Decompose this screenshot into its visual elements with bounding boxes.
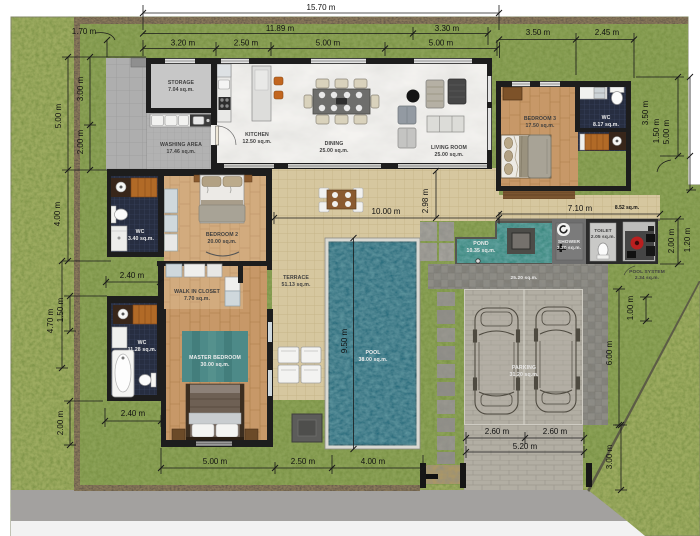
svg-text:1.50 m: 1.50 m [56,297,65,322]
svg-text:POOL SYSTEM: POOL SYSTEM [629,269,665,275]
svg-text:2.50 m: 2.50 m [234,39,259,48]
svg-text:4.00 m: 4.00 m [53,201,62,226]
svg-text:25.00 sq.m.: 25.00 sq.m. [319,148,349,154]
svg-text:2.40 m: 2.40 m [120,271,145,280]
svg-text:4.00 m: 4.00 m [361,457,386,466]
svg-text:7.04 sq.m.: 7.04 sq.m. [168,87,194,93]
svg-text:3.20 sq.m.: 3.20 sq.m. [557,245,581,251]
svg-text:11.28 sq.m.: 11.28 sq.m. [128,347,157,353]
svg-text:3.00 m: 3.00 m [605,444,614,469]
svg-text:1.20 m: 1.20 m [683,227,692,252]
svg-text:3.40 sq.m.: 3.40 sq.m. [128,236,155,242]
svg-text:POOL: POOL [365,350,381,356]
svg-text:3.50 m: 3.50 m [641,100,650,125]
svg-text:3.20 m: 3.20 m [171,39,196,48]
svg-text:6.00 m: 6.00 m [605,340,614,365]
svg-text:1.50 m: 1.50 m [652,118,661,143]
svg-text:KITCHEN: KITCHEN [245,132,269,138]
svg-text:TERRACE: TERRACE [283,275,309,281]
svg-text:2.60 m: 2.60 m [485,427,510,436]
svg-text:BEDROOM 2: BEDROOM 2 [206,232,238,238]
svg-text:17.50 sq.m.: 17.50 sq.m. [525,123,555,129]
svg-text:WC: WC [136,229,145,235]
svg-text:4.70 m: 4.70 m [46,308,55,333]
svg-text:3.50 m: 3.50 m [526,28,551,37]
svg-text:8.52 sq.m.: 8.52 sq.m. [615,205,640,211]
svg-text:WASHING AREA: WASHING AREA [160,142,202,148]
svg-text:25.00 sq.m.: 25.00 sq.m. [434,152,464,158]
svg-text:15.70 m: 15.70 m [307,3,336,12]
svg-text:7.10 m: 7.10 m [568,204,593,213]
svg-text:30.00 sq.m.: 30.00 sq.m. [200,362,230,368]
svg-text:51.13 sq.m.: 51.13 sq.m. [281,282,311,288]
svg-text:2.45 m: 2.45 m [595,28,620,37]
svg-text:TOILET: TOILET [594,228,612,234]
svg-text:17.46 sq.m.: 17.46 sq.m. [166,149,196,155]
svg-text:WC: WC [602,115,611,121]
svg-text:10.00 m: 10.00 m [372,207,401,216]
svg-text:5.00 m: 5.00 m [54,103,63,128]
svg-text:5.00 m: 5.00 m [203,457,228,466]
svg-text:POND: POND [473,241,489,247]
svg-text:1.00 m: 1.00 m [626,295,635,320]
svg-text:2.60 m: 2.60 m [543,427,568,436]
svg-text:SHOWER: SHOWER [558,239,581,245]
svg-text:2.00 m: 2.00 m [56,410,65,435]
svg-text:BEDROOM 3: BEDROOM 3 [524,116,556,122]
svg-text:2.34 sq.m.: 2.34 sq.m. [635,275,659,281]
svg-text:5.00 m: 5.00 m [429,39,454,48]
svg-text:5.00 m: 5.00 m [316,39,341,48]
svg-text:STORAGE: STORAGE [168,80,195,86]
svg-text:31.20 sq.m.: 31.20 sq.m. [509,372,539,378]
svg-text:12.50 sq.m.: 12.50 sq.m. [242,139,272,145]
svg-text:2.00 m: 2.00 m [76,129,85,154]
svg-text:MASTER BEDROOM: MASTER BEDROOM [189,355,241,361]
svg-text:5.20 m: 5.20 m [513,442,538,451]
svg-text:3.00 m: 3.00 m [76,76,85,101]
svg-text:2.05 sq.m.: 2.05 sq.m. [591,234,615,240]
svg-text:10.35 sq.m.: 10.35 sq.m. [466,248,496,254]
svg-text:2.00 m: 2.00 m [667,228,676,253]
svg-text:20.00 sq.m.: 20.00 sq.m. [207,239,237,245]
svg-text:WC: WC [138,340,147,346]
svg-text:2.50 m: 2.50 m [291,457,316,466]
svg-text:5.00 m: 5.00 m [662,119,671,144]
svg-text:11.89 m: 11.89 m [266,24,295,33]
svg-text:DINING: DINING [325,141,344,147]
svg-text:LIVING ROOM: LIVING ROOM [431,145,467,151]
svg-text:2.40 m: 2.40 m [121,409,146,418]
svg-text:WALK IN CLOSET: WALK IN CLOSET [174,289,221,295]
svg-text:1.70 m: 1.70 m [72,27,97,36]
svg-text:3.30 m: 3.30 m [435,24,460,33]
svg-text:38.00 sq.m.: 38.00 sq.m. [358,357,388,363]
svg-text:8.17 sq.m.: 8.17 sq.m. [593,122,620,128]
svg-text:9.50 m: 9.50 m [340,328,349,353]
svg-text:PARKING: PARKING [512,365,536,371]
svg-text:25.20 sq.m.: 25.20 sq.m. [511,275,538,281]
svg-text:2.98 m: 2.98 m [421,188,430,213]
svg-text:7.70 sq.m.: 7.70 sq.m. [184,296,211,302]
